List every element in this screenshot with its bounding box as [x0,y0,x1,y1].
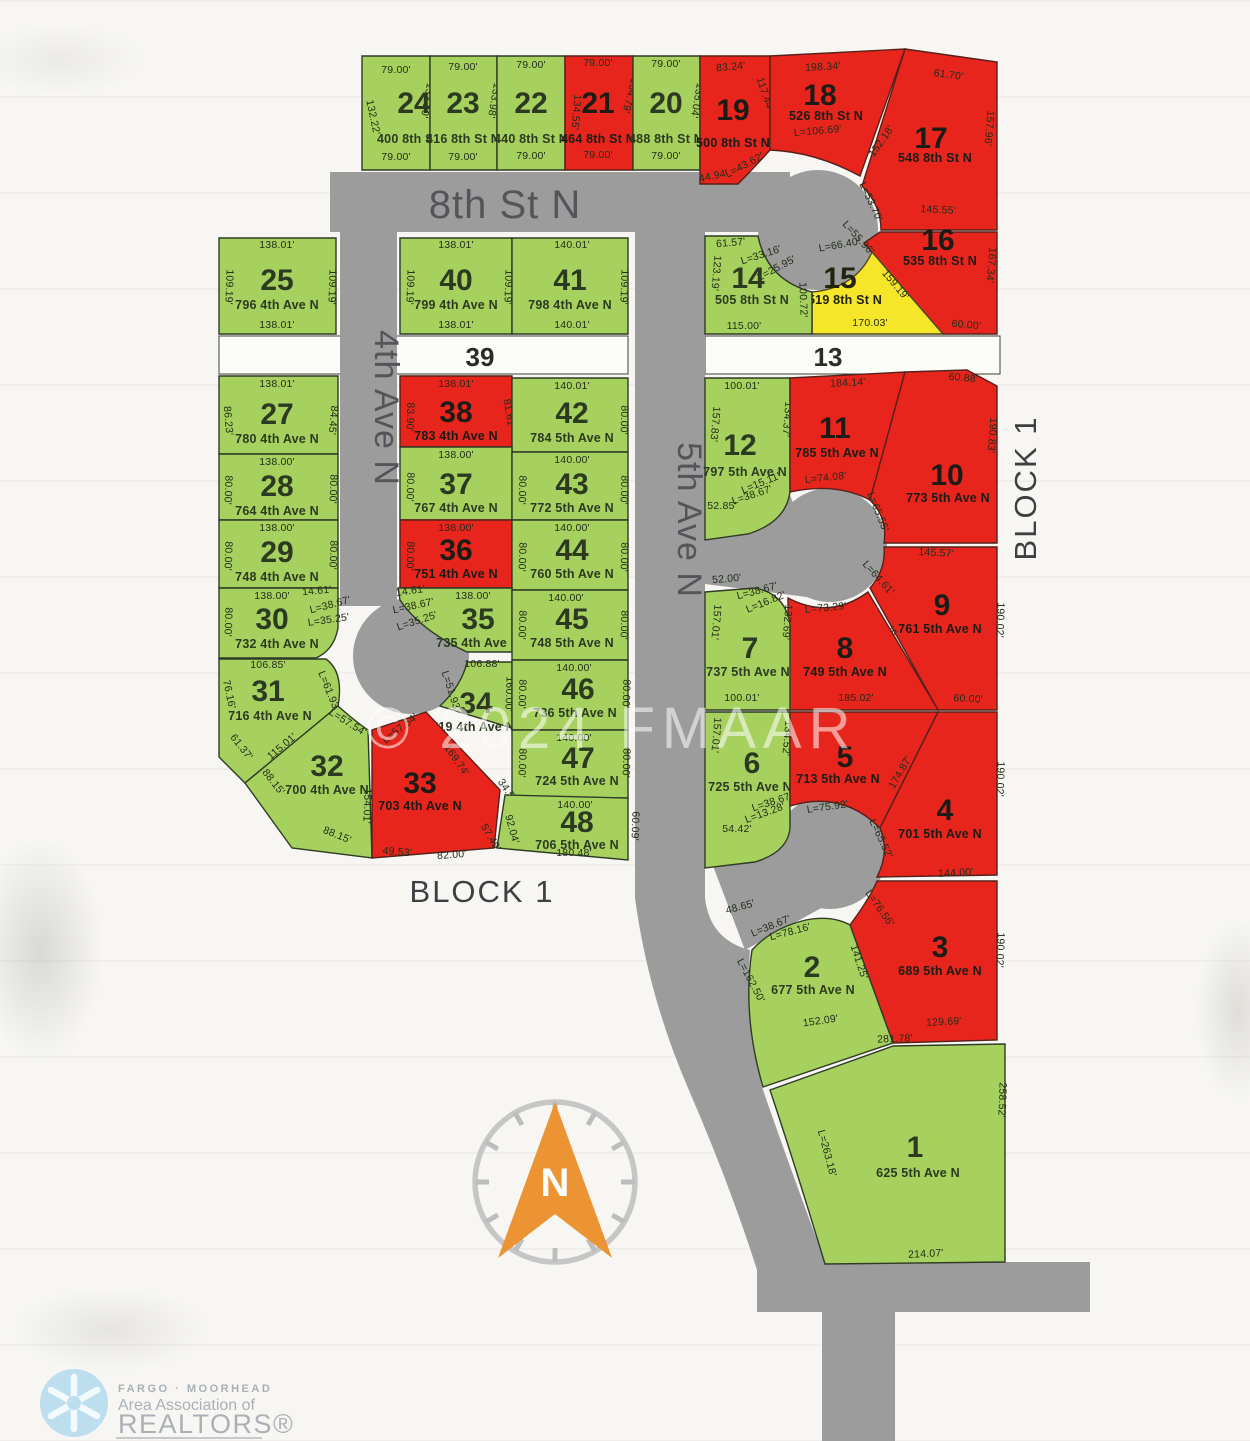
lot-25-dim-0: 138.01' [259,239,295,251]
lot-6-dim-4: 54.42' [722,823,751,835]
lot-16-number: 16 [921,224,954,257]
compass-tick [588,1113,595,1125]
lot-21-address: 464 8th St N [561,132,635,146]
lot-43-dim-2: 80.00' [617,475,630,505]
lot-25-dim-1: 109.19' [222,269,235,305]
lot-35-dim-3: 138.00' [455,590,491,602]
street-label-5th-ave-n: 5th Ave N [670,442,708,598]
lot-45-address: 748 5th Ave N [530,636,614,650]
lot-30-dim-0: 138.00' [254,590,290,602]
lot-41-address: 798 4th Ave N [528,298,612,312]
lot-6-address: 725 5th Ave N [708,780,792,794]
lot-4-dim-2: 144.00' [938,866,974,880]
lot-4-number: 4 [937,794,954,827]
lot-7-dim-0: 52.00' [712,572,742,587]
lot-23-dim-2: 79.00' [448,151,477,163]
lot-1-dim-3: 214.07' [908,1247,944,1261]
lot-40-dim-3: 138.01' [438,319,474,331]
lot-42-dim-1: 80.00' [617,405,630,435]
lot-48-address: 706 5th Ave N [535,838,619,852]
lot-43-dim-0: 140.00' [554,454,590,466]
lot-36-address: 751 4th Ave N [414,567,498,581]
lot-45-dim-2: 80.00' [617,610,630,640]
lot-38-dim-0: 138.01' [438,378,474,390]
lot-1-dim-1: 258.52' [995,1082,1008,1118]
outlot-39-parcel [219,336,628,374]
lot-37-address: 767 4th Ave N [414,501,498,515]
lot-41-number: 41 [553,264,586,297]
lot-43-address: 772 5th Ave N [530,501,614,515]
lot-36-number: 36 [439,534,472,567]
compass-tick [515,1113,522,1125]
lot-41-dim-1: 109.19' [617,269,630,305]
outlot-13-parcel [705,336,1000,374]
lot-41-dim-0: 140.01' [554,239,590,251]
lot-9-dim-0: 145.57' [918,546,954,560]
lot-44-address: 760 5th Ave N [530,567,614,581]
lot-28-number: 28 [260,470,293,503]
lot-14-number: 14 [731,262,765,295]
lot-23-dim-0: 79.00' [448,61,477,73]
lot-31-dim-0: 106.85' [250,659,286,671]
lot-7-number: 7 [742,632,759,665]
realtors-logo: FARGO · MOORHEAD Area Association of REA… [40,1369,294,1439]
lot-15-number: 15 [823,262,856,295]
lot-24-dim-3: 79.00' [381,151,410,163]
lot-19-number: 19 [716,94,749,127]
lot-41-dim-2: 140.01' [554,319,590,331]
lot-9-dim-3: 190.02' [993,602,1006,638]
lot-40-address: 799 4th Ave N [414,298,498,312]
block-label-right: BLOCK 1 [1008,416,1043,561]
lot-14-dim-5: 115.00' [727,320,762,332]
lot-29-dim-2: 80.00' [326,540,339,570]
lot-30-dim-4: 80.00' [221,607,234,637]
lot-15-dim-2: 170.03' [852,317,888,329]
lot-3-dim-1: 190.02' [993,932,1006,968]
lot-1-dim-0: 281.78' [877,1032,913,1045]
lot-30-number: 30 [255,603,288,636]
lot-27-address: 780 4th Ave N [235,432,319,446]
outlot-39-number: 39 [466,342,495,372]
snowflake-center [67,1396,81,1410]
lot-22-dim-0: 79.00' [516,59,545,71]
compass-tick [612,1142,624,1149]
lot-14-dim-0: 61.57' [716,236,746,251]
lot-25-dim-2: 109.19' [325,269,338,305]
lot-33-dim-3: 82.00' [437,848,467,862]
lot-37-number: 37 [439,468,472,501]
lot-32-number: 32 [310,750,343,783]
lot-12-dim-5: 52.85' [707,500,736,512]
lot-27-dim-0: 138.01' [259,378,295,390]
lot-38-number: 38 [439,396,472,429]
plat-map: 3913 79.00'132.22'133.10'79.00'24400 8th… [0,0,1250,1441]
lot-14-address: 505 8th St N [715,293,789,307]
lot-48-number: 48 [560,806,593,839]
lot-33-address: 703 4th Ave N [378,799,462,813]
lot-18-address: 526 8th St N [789,109,863,123]
lot-22-number: 22 [514,87,547,120]
lot-42-number: 42 [555,397,588,430]
watermark: © 2024 FMAAR [367,696,858,761]
lot-47-address: 724 5th Ave N [535,774,619,788]
lot-11-dim-0: 184.14' [830,376,866,390]
lot-30-dim-1: 14.61' [302,584,332,599]
lot-23-number: 23 [446,87,479,120]
compass-north-letter: N [541,1161,570,1205]
compass-tick [486,1142,498,1149]
lot-1-number: 1 [907,1131,924,1164]
lot-27-dim-1: 86.23' [221,406,236,436]
lot-25-address: 796 4th Ave N [235,298,319,312]
outlots-layer: 3913 [219,336,1000,374]
lot-34-dim-0: 106.88' [464,658,500,670]
lot-18-dim-0: 198.34' [805,60,841,74]
street-label-4th-ave-n: 4th Ave N [367,330,405,486]
lot-48-dim-4: 60.09' [628,811,641,841]
road-bottom-stub [822,1312,895,1441]
lot-4-address: 701 5th Ave N [898,827,982,841]
lot-44-dim-1: 80.00' [515,542,528,572]
lot-20-number: 20 [649,87,682,120]
lot-28-dim-0: 138.00' [259,456,295,468]
lot-31-address: 716 4th Ave N [228,709,312,723]
compass-tick [486,1215,498,1222]
lot-12-number: 12 [723,429,756,462]
lot-43-dim-1: 80.00' [515,475,528,505]
lot-44-dim-0: 140.00' [554,522,590,534]
lot-2-address: 677 5th Ave N [771,983,855,997]
lot-8-number: 8 [837,632,854,665]
lot-22-dim-1: 79.00' [516,150,545,162]
lot-25-number: 25 [260,264,293,297]
logo-line-bottom: REALTORS® [118,1409,294,1439]
compass-rose: N [475,1102,635,1262]
lot-8-address: 749 5th Ave N [803,665,887,679]
lot-16-dim-0: 145.55' [920,203,956,217]
lot-19-address: 500 8th St N [696,136,770,150]
lot-16-dim-3: 60.00' [951,318,981,333]
street-label-8th-st-n: 8th St N [429,183,582,227]
lot-12-dim-0: 100.01' [724,380,760,392]
lot-21-dim-3: 79.00' [583,149,612,161]
lot-16-address: 535 8th St N [903,254,977,268]
lot-45-dim-1: 80.00' [515,610,528,640]
logo-line-top: FARGO · MOORHEAD [118,1383,272,1395]
lot-25-dim-3: 138.01' [259,319,295,331]
lot-4-dim-0: 190.02' [993,761,1006,797]
lot-27-number: 27 [260,398,293,431]
lot-14-dim-4: 100.72' [796,282,809,318]
lot-10-number: 10 [930,459,963,492]
lot-24-number: 24 [397,87,431,120]
compass-tick [612,1215,624,1222]
lot-44-number: 44 [555,534,589,567]
lot-29-address: 748 4th Ave N [235,570,319,584]
outlot-13-number: 13 [814,342,843,372]
lot-19-dim-0: 83.24' [716,60,746,75]
lot-10-dim-0: 60.88' [948,371,978,386]
lot-20-dim-0: 79.00' [651,58,680,70]
lot-9-number: 9 [934,589,951,622]
lot-21-dim-0: 79.00' [583,57,612,69]
lot-28-address: 764 4th Ave N [235,504,319,518]
lot-45-number: 45 [555,603,588,636]
lot-3-address: 689 5th Ave N [898,964,982,978]
road-bottom-east [757,1262,1090,1312]
lot-3-dim-2: 129.69' [926,1015,962,1029]
lot-18-number: 18 [803,79,836,112]
lot-44-dim-2: 80.00' [617,542,630,572]
lot-24-dim-0: 79.00' [381,64,410,76]
plat-map-page: 3913 79.00'132.22'133.10'79.00'24400 8th… [0,0,1250,1441]
lot-29-dim-1: 80.00' [221,541,234,571]
lot-15-address: 519 8th St N [808,293,882,307]
lot-37-dim-0: 138.00' [438,449,474,461]
lot-33-number: 33 [403,767,436,800]
lot-31-number: 31 [251,675,284,708]
lot-35-number: 35 [461,603,494,636]
lot-42-dim-0: 140.01' [554,380,590,392]
lot-12-address: 797 5th Ave N [703,465,787,479]
lot-2-number: 2 [804,951,821,984]
lot-9-dim-4: 60.00' [953,692,983,706]
lot-32-address: 700 4th Ave N [285,783,369,797]
lot-35-address: 735 4th Ave N [436,636,520,650]
lot-5-address: 713 5th Ave N [796,772,880,786]
lot-20-dim-2: 79.00' [651,150,680,162]
lot-40-dim-0: 138.01' [438,239,474,251]
lot-7-address: 737 5th Ave N [706,665,790,679]
lot-17-address: 548 8th St N [898,151,972,165]
lot-29-dim-0: 138.00' [259,522,295,534]
lot-29-number: 29 [260,536,293,569]
lot-20-address: 488 8th St N [629,132,703,146]
lot-38-address: 783 4th Ave N [414,429,498,443]
block-label-bottom: BLOCK 1 [410,874,555,909]
lot-23-address: 416 8th St N [426,132,500,146]
lot-43-number: 43 [555,468,588,501]
lot-30-address: 732 4th Ave N [235,637,319,651]
lot-11-address: 785 5th Ave N [795,446,879,460]
lot-11-number: 11 [819,412,851,445]
lot-10-address: 773 5th Ave N [906,491,990,505]
lot-42-address: 784 5th Ave N [530,431,614,445]
lot-22-address: 440 8th St N [494,132,568,146]
lot-27-dim-2: 84.45' [326,405,341,435]
lot-28-dim-1: 80.00' [221,475,234,505]
lot-33-dim-2: 49.53' [382,845,412,860]
lot-9-address: 761 5th Ave N [898,622,982,636]
lot-28-dim-2: 80.00' [326,474,339,504]
lot-1-address: 625 5th Ave N [876,1166,960,1180]
lot-36-dim-0: 138.00' [438,522,474,534]
lot-3-number: 3 [932,931,949,964]
lot-21-number: 21 [581,87,614,120]
lot-40-number: 40 [439,264,472,297]
